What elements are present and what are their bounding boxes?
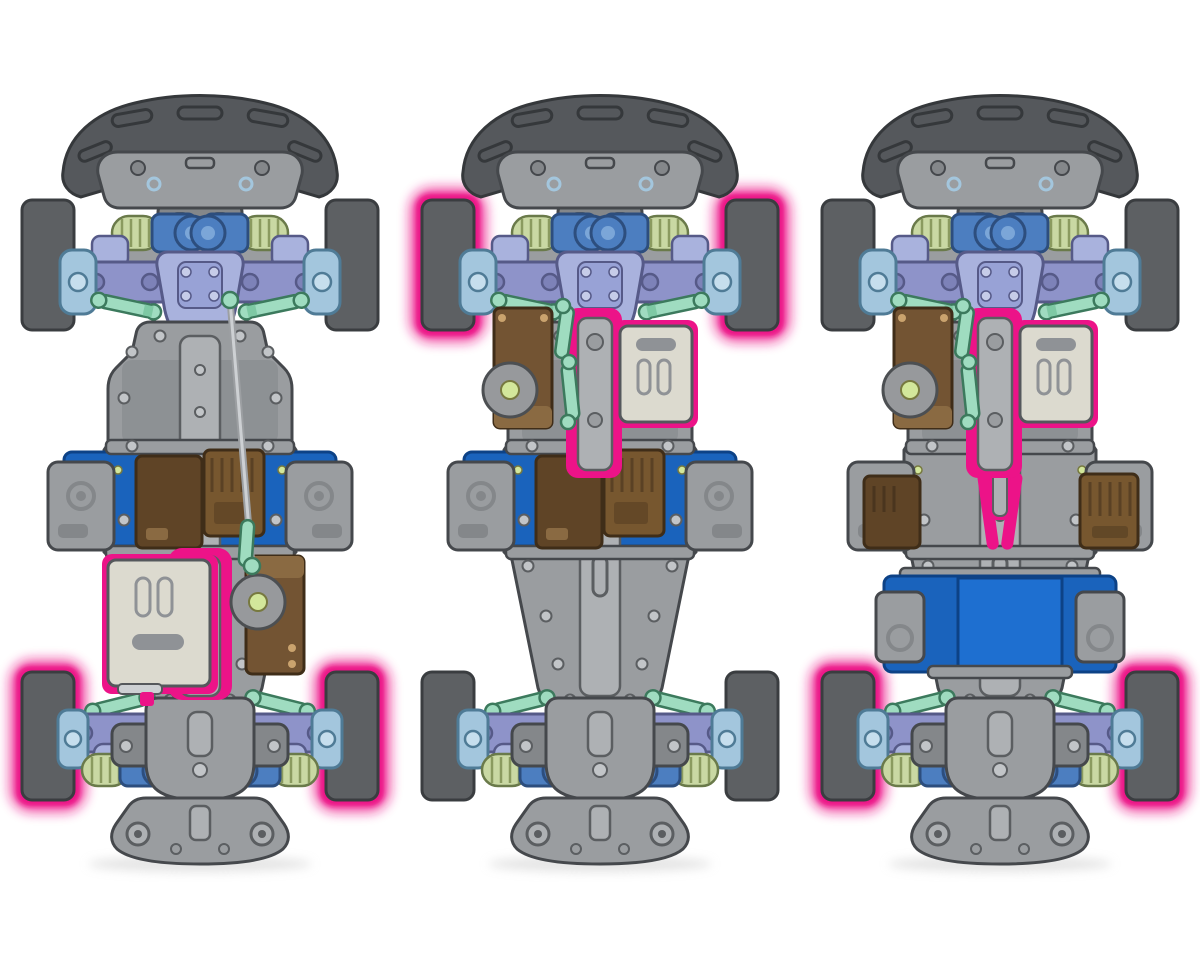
- front-right-knuckle: [704, 250, 740, 314]
- rear-left-knuckle: [58, 710, 88, 768]
- battery-clamp-left: [876, 592, 924, 662]
- side-guard-right: [286, 462, 352, 550]
- layout-front-motor-front-drive: [410, 96, 790, 873]
- rear-left-knuckle: [458, 710, 488, 768]
- front-body-mount: [898, 152, 1103, 208]
- rear-left-knuckle: [858, 710, 888, 768]
- front-left-knuckle: [460, 250, 496, 314]
- front-body-mount: [498, 152, 703, 208]
- side-guard-left: [48, 462, 114, 550]
- chassis-illustration: [0, 0, 1200, 960]
- front-right-knuckle: [1104, 250, 1140, 314]
- battery-pack-rear: [876, 568, 1124, 678]
- rear-suspension: [458, 689, 742, 800]
- side-guard-right: [686, 462, 752, 550]
- steering-servo-left: [883, 308, 952, 428]
- front-right-knuckle: [304, 250, 340, 314]
- rear-right-knuckle: [1112, 710, 1142, 768]
- layout-front-motor-rear-drive: [810, 96, 1190, 873]
- front-left-knuckle: [60, 250, 96, 314]
- illustration-canvas: [0, 0, 1200, 960]
- layout-rear-motor: [10, 96, 390, 873]
- front-left-knuckle: [860, 250, 896, 314]
- rear-right-knuckle: [712, 710, 742, 768]
- rear-body-mount: [512, 798, 689, 864]
- front-body-mount: [98, 152, 303, 208]
- side-guard-left: [448, 462, 514, 550]
- battery-clamp-right: [1076, 592, 1124, 662]
- steering-servo-left: [483, 308, 552, 428]
- motor-rear: [102, 548, 232, 706]
- rear-right-knuckle: [312, 710, 342, 768]
- rear-suspension: [58, 689, 342, 800]
- rear-body-mount: [912, 798, 1089, 864]
- rear-body-mount: [112, 798, 289, 864]
- rear-suspension: [858, 689, 1142, 800]
